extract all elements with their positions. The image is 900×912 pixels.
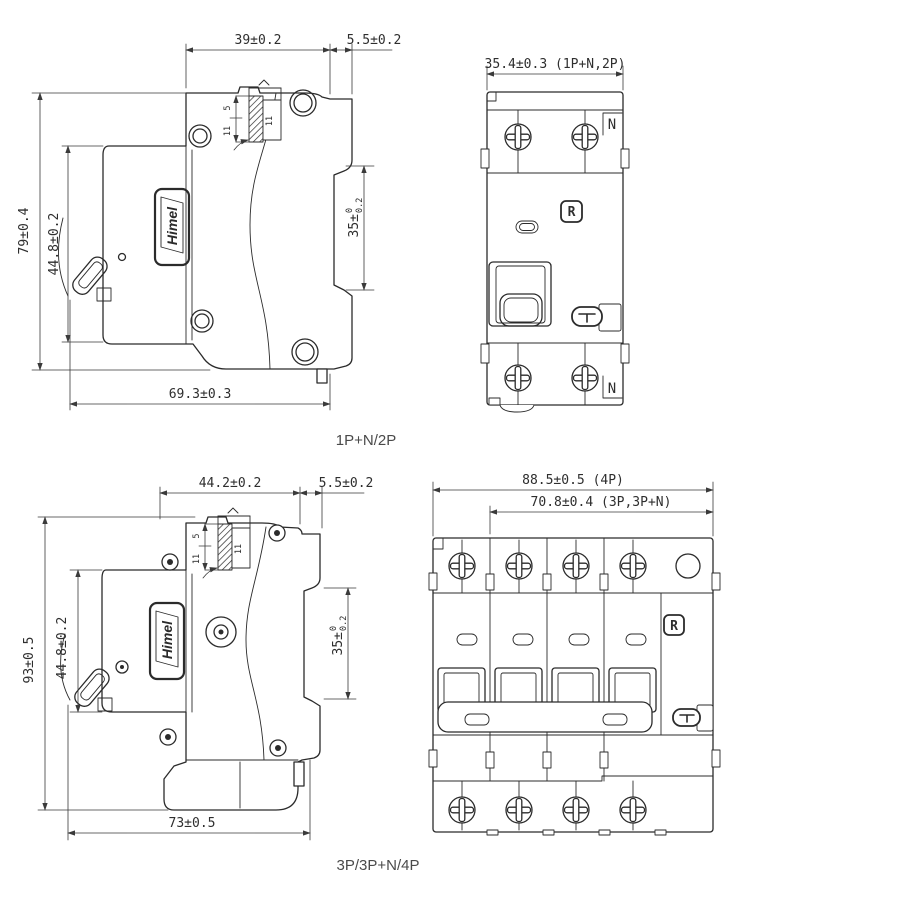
front-view-4p: R 88.5±0.5 (4P) 70.8±0.4 (3P,3P+N) <box>429 473 720 835</box>
dim-front-width-4p: 88.5±0.5 (4P) <box>522 473 624 488</box>
dim-overall-height: 93±0.5 <box>22 637 37 684</box>
dim-rail-depth: 5.5±0.2 <box>319 476 374 491</box>
breaker-side-outline <box>102 517 320 810</box>
rail-hatch <box>218 524 232 570</box>
svg-text:0.2: 0.2 <box>355 198 365 213</box>
svg-text:0: 0 <box>345 208 355 213</box>
svg-text:35±: 35± <box>331 632 346 656</box>
din-clip-tab <box>317 369 327 383</box>
technical-drawing: Himel 5 11 11 <box>0 0 900 912</box>
phillips-screw-icon <box>506 553 532 579</box>
rail-hatch <box>249 96 263 142</box>
dim-lines-side-4p <box>38 487 364 840</box>
detail-dim-11b: 11 <box>265 116 275 126</box>
detail-dim-11b: 11 <box>234 544 244 554</box>
dim-body-height: 44.8±0.2 <box>47 213 62 276</box>
phillips-screw-icon <box>572 365 598 391</box>
dim-top-width: 39±0.2 <box>235 33 282 48</box>
caption-1p-n-2p: 1P+N/2P <box>336 432 396 449</box>
dim-overall-height: 79±0.4 <box>17 207 32 254</box>
dim-top-width: 44.2±0.2 <box>199 476 262 491</box>
phillips-screw-icon <box>563 553 589 579</box>
phillips-screw-icon <box>620 797 646 823</box>
neutral-pole-label-bottom: N <box>608 381 616 397</box>
svg-text:R: R <box>568 205 576 220</box>
phillips-screw-icon <box>506 797 532 823</box>
dim-body-height: 44.8±0.2 <box>55 617 70 680</box>
phillips-screw-icon <box>449 553 475 579</box>
phillips-screw-icon <box>505 365 531 391</box>
himel-logo: Himel <box>150 603 184 679</box>
side-view-4p: Himel 5 11 11 <box>22 476 419 874</box>
detail-dim-11a: 11 <box>223 126 233 136</box>
phillips-screw-icon <box>620 553 646 579</box>
dim-rail-depth: 5.5±0.2 <box>347 33 402 48</box>
himel-logo: Himel <box>155 189 189 265</box>
svg-text:R: R <box>670 619 678 634</box>
case-seams <box>186 527 298 808</box>
breaker-front-outline <box>433 538 713 832</box>
logo-text: Himel <box>159 620 175 659</box>
side-view-2p: Himel 5 11 11 <box>17 33 401 449</box>
dim-rail-height: 35± 0 0.2 <box>345 198 365 238</box>
dim-front-width-3p: 70.8±0.4 (3P,3P+N) <box>531 495 672 510</box>
handle-tie-bar <box>438 702 652 732</box>
neutral-pole-label-top: N <box>608 117 616 133</box>
dim-rail-height: 35± 0 0.2 <box>329 616 349 656</box>
caption-3p-4p: 3P/3P+N/4P <box>337 857 420 874</box>
phillips-screw-icon <box>505 124 531 150</box>
svg-text:35±: 35± <box>347 214 362 238</box>
phillips-screw-icon <box>563 797 589 823</box>
din-rail-hatch-detail: 5 11 11 <box>223 80 281 150</box>
svg-text:0.2: 0.2 <box>339 616 349 631</box>
logo-text: Himel <box>164 206 180 245</box>
detail-dim-11a: 11 <box>192 554 202 564</box>
dim-front-width-2p: 35.4±0.3 (1P+N,2P) <box>485 57 626 72</box>
detail-dim-5: 5 <box>192 533 202 538</box>
drawing-canvas: Himel 5 11 11 <box>0 0 900 912</box>
phillips-screw-icon <box>449 797 475 823</box>
front-view-2p: N N R 35.4±0.3 (1P+N,2P) <box>481 57 629 412</box>
svg-text:0: 0 <box>329 626 339 631</box>
screw-access-holes <box>119 90 319 365</box>
dim-bottom-width: 73±0.5 <box>169 816 216 831</box>
detail-dim-5: 5 <box>223 105 233 110</box>
dim-bottom-width: 69.3±0.3 <box>169 387 232 402</box>
din-clip-tab <box>294 762 304 786</box>
din-rail-hatch-detail: 5 11 11 <box>192 508 250 578</box>
phillips-screw-icon <box>572 124 598 150</box>
blank-terminal-hole <box>676 554 700 578</box>
